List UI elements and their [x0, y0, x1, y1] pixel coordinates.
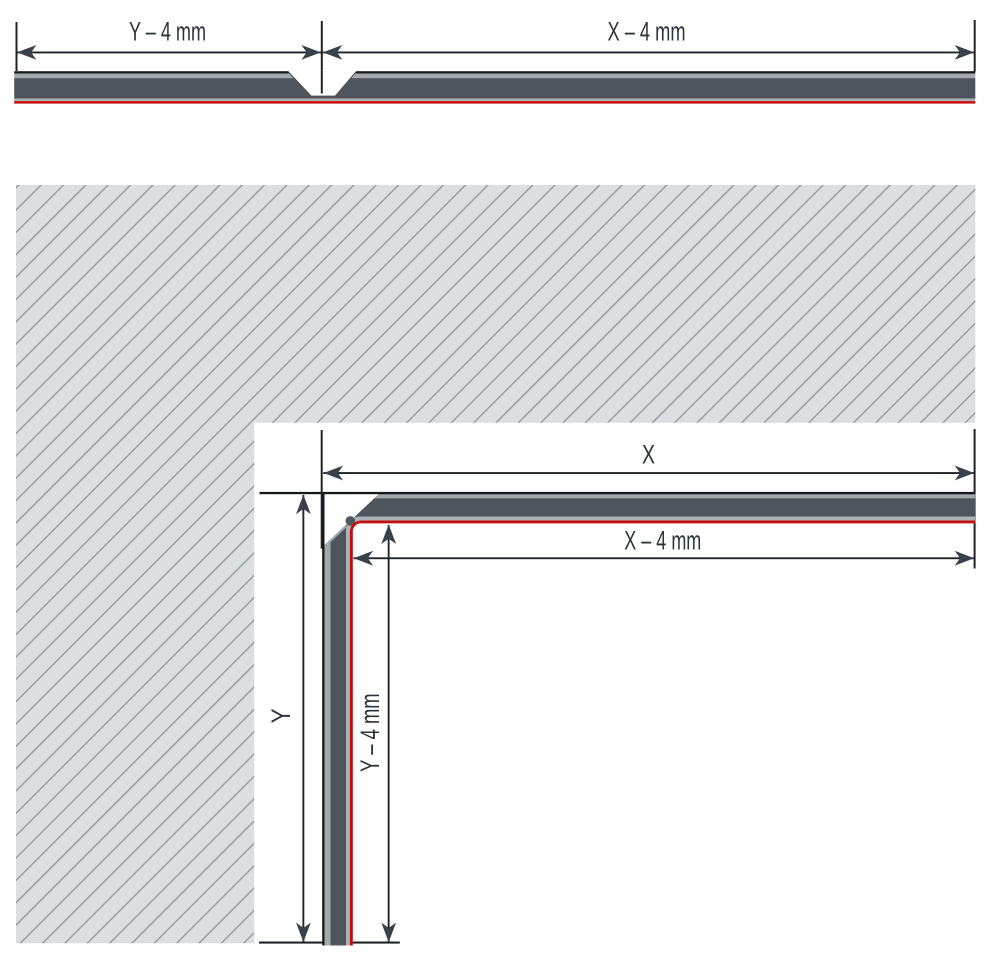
- svg-text:Y – 4 mm: Y – 4 mm: [129, 17, 206, 47]
- svg-text:X – 4 mm: X – 4 mm: [608, 17, 686, 47]
- svg-text:X: X: [642, 439, 655, 469]
- svg-text:Y – 4 mm: Y – 4 mm: [355, 693, 385, 772]
- svg-text:X – 4 mm: X – 4 mm: [624, 525, 701, 555]
- svg-text:Y: Y: [266, 708, 296, 723]
